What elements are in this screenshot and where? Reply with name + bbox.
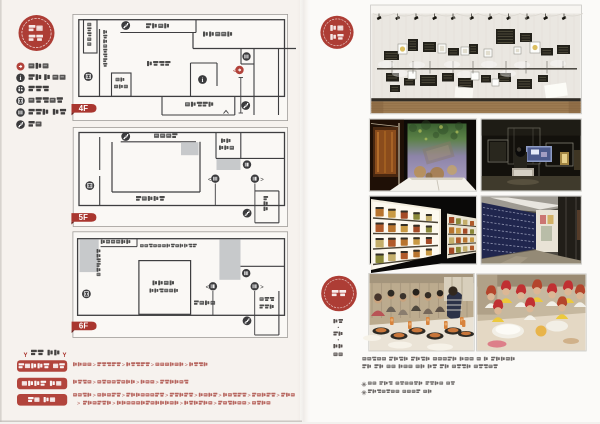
svg-text:>: >	[122, 393, 125, 399]
svg-text:>: >	[93, 380, 96, 386]
svg-text:>: >	[156, 380, 159, 386]
svg-text:>: >	[277, 393, 280, 399]
svg-text:5F: 5F	[79, 213, 89, 222]
svg-text:>: >	[248, 393, 251, 399]
svg-text:6F: 6F	[79, 322, 89, 331]
svg-text:4F: 4F	[79, 104, 89, 113]
svg-text:>: >	[260, 177, 264, 183]
svg-text:>: >	[194, 393, 197, 399]
svg-text:>: >	[247, 401, 250, 407]
svg-text:>: >	[218, 393, 221, 399]
svg-text:>: >	[93, 362, 96, 368]
svg-text:>: >	[260, 285, 264, 291]
svg-text:>: >	[185, 362, 188, 368]
svg-text:>: >	[165, 393, 168, 399]
svg-text:>: >	[136, 380, 139, 386]
svg-text:>: >	[93, 393, 96, 399]
svg-text:>: >	[77, 401, 80, 407]
svg-text:>: >	[151, 362, 154, 368]
svg-text:>: >	[122, 362, 125, 368]
svg-text:>: >	[214, 401, 217, 407]
svg-text:i: i	[202, 77, 204, 84]
svg-text:i: i	[20, 75, 22, 82]
svg-text:>: >	[180, 401, 183, 407]
svg-text:>: >	[112, 401, 115, 407]
